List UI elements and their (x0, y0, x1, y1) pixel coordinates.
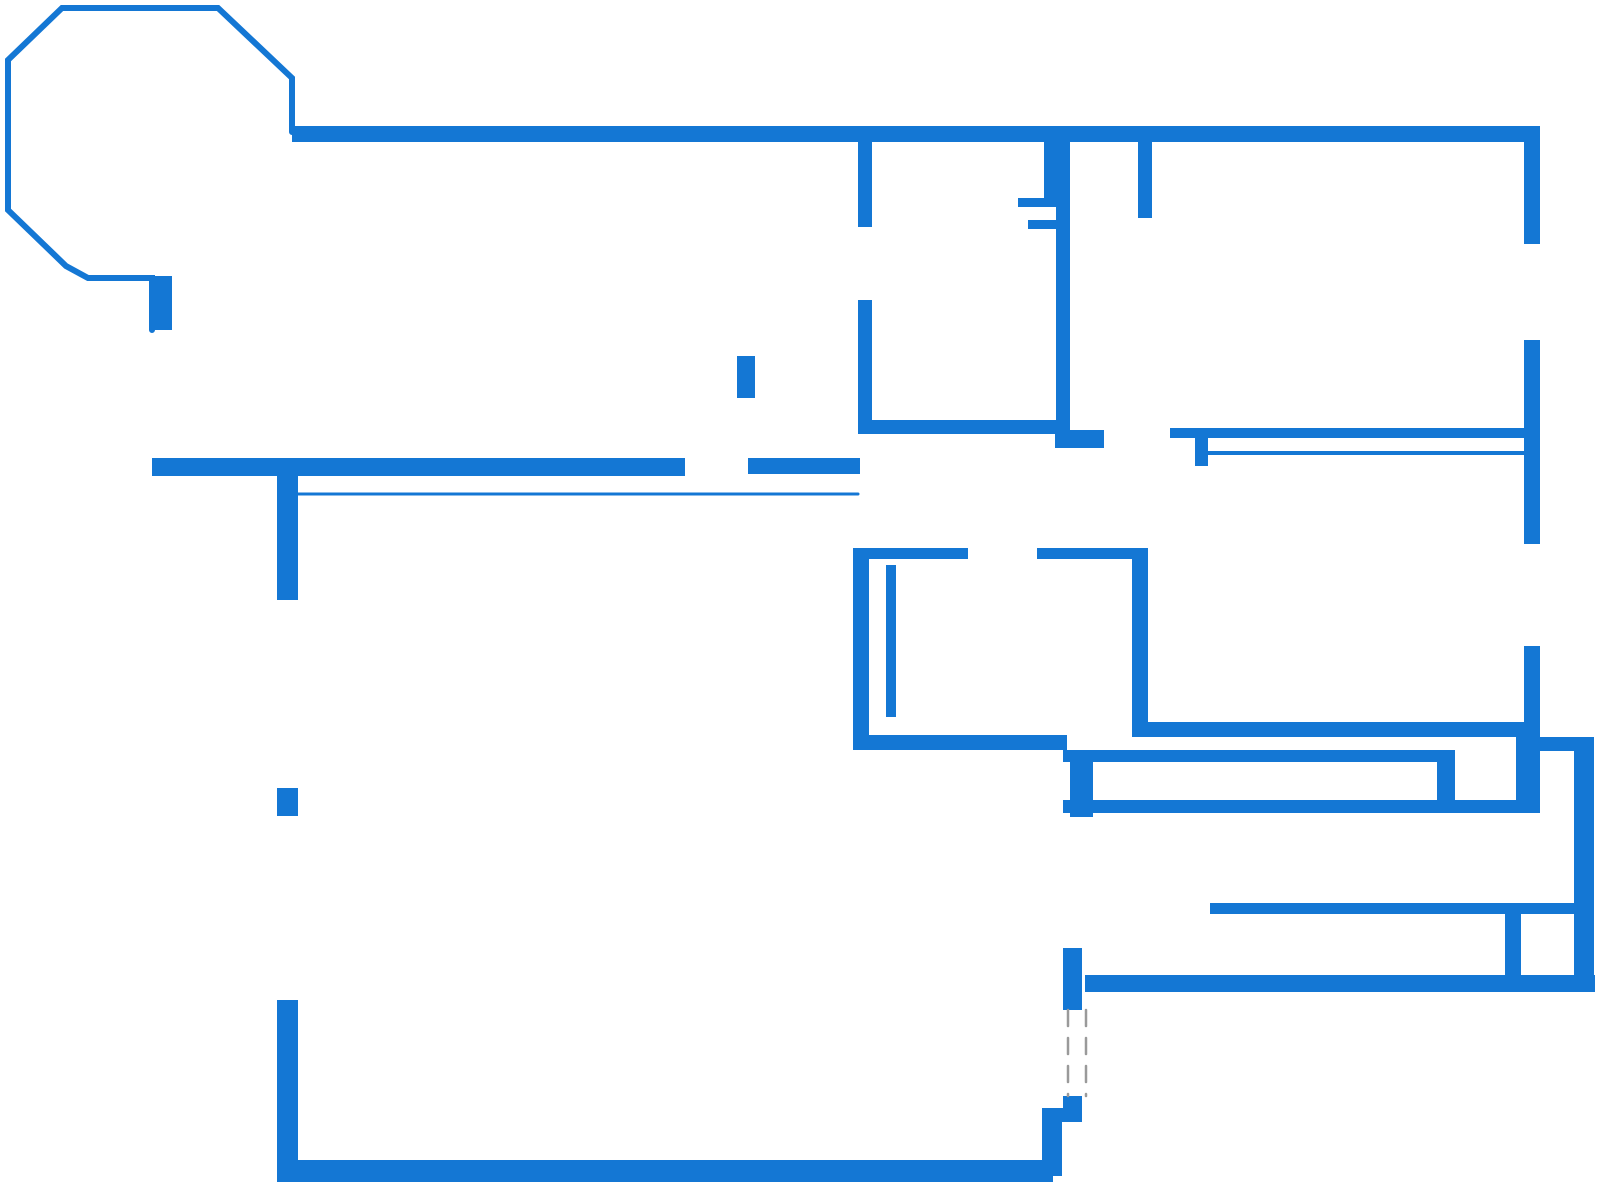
exterior-and-interior-walls-rect (1132, 548, 1148, 737)
exterior-and-interior-walls-rect (1063, 948, 1082, 1010)
exterior-and-interior-walls-rect (277, 476, 298, 600)
exterior-and-interior-walls-rect (1524, 126, 1540, 244)
exterior-and-interior-walls-rect (855, 735, 1067, 750)
exterior-and-interior-walls-rect (1574, 737, 1594, 992)
exterior-and-interior-walls-rect (1018, 198, 1068, 207)
exterior-and-interior-walls-rect (1063, 1096, 1082, 1112)
exterior-and-interior-walls-rect (886, 565, 896, 717)
exterior-and-interior-walls-rect (1028, 220, 1068, 229)
exterior-and-interior-walls-rect (1044, 142, 1056, 200)
exterior-and-interior-walls-rect (748, 458, 860, 474)
exterior-and-interior-walls-rect (1037, 548, 1148, 559)
floor-plan-canvas (0, 0, 1600, 1184)
exterior-and-interior-walls-rect (853, 548, 869, 750)
exterior-and-interior-walls-rect (1505, 912, 1521, 975)
exterior-and-interior-walls-rect (277, 1160, 1053, 1182)
exterior-and-interior-walls-rect (277, 788, 298, 816)
exterior-and-interior-walls-rect (1138, 142, 1152, 218)
exterior-and-interior-walls-rect (858, 300, 872, 420)
exterior-and-interior-walls-rect (853, 548, 968, 559)
exterior-and-interior-walls-rect (1170, 428, 1524, 438)
octagon-bay-wall (8, 8, 292, 330)
exterior-and-interior-walls-rect (292, 126, 1540, 142)
floor-plan-page (0, 0, 1600, 1184)
exterior-and-interior-walls-rect (1056, 142, 1070, 420)
exterior-and-interior-walls-rect (1195, 428, 1208, 466)
exterior-and-interior-walls (152, 126, 1595, 1182)
octagon-bay-wall-path (8, 8, 292, 330)
exterior-and-interior-walls-rect (858, 420, 1070, 434)
exterior-and-interior-walls-rect (1540, 737, 1576, 751)
exterior-and-interior-walls-rect (1055, 430, 1104, 448)
exterior-and-interior-walls-rect (152, 458, 685, 476)
exterior-and-interior-walls-rect (1148, 722, 1540, 737)
exterior-and-interior-walls-rect (277, 1000, 298, 1162)
exterior-and-interior-walls-rect (1516, 737, 1540, 813)
exterior-and-interior-walls-rect (1524, 340, 1540, 544)
exterior-and-interior-walls-rect (1437, 750, 1455, 813)
exterior-and-interior-walls-rect (737, 356, 755, 398)
exterior-and-interior-walls-rect (1210, 903, 1576, 914)
exterior-and-interior-walls-rect (1042, 1120, 1062, 1176)
exterior-and-interior-walls-rect (1063, 750, 1443, 762)
exterior-and-interior-walls-rect (1085, 975, 1595, 992)
exterior-and-interior-walls-rect (858, 142, 872, 227)
